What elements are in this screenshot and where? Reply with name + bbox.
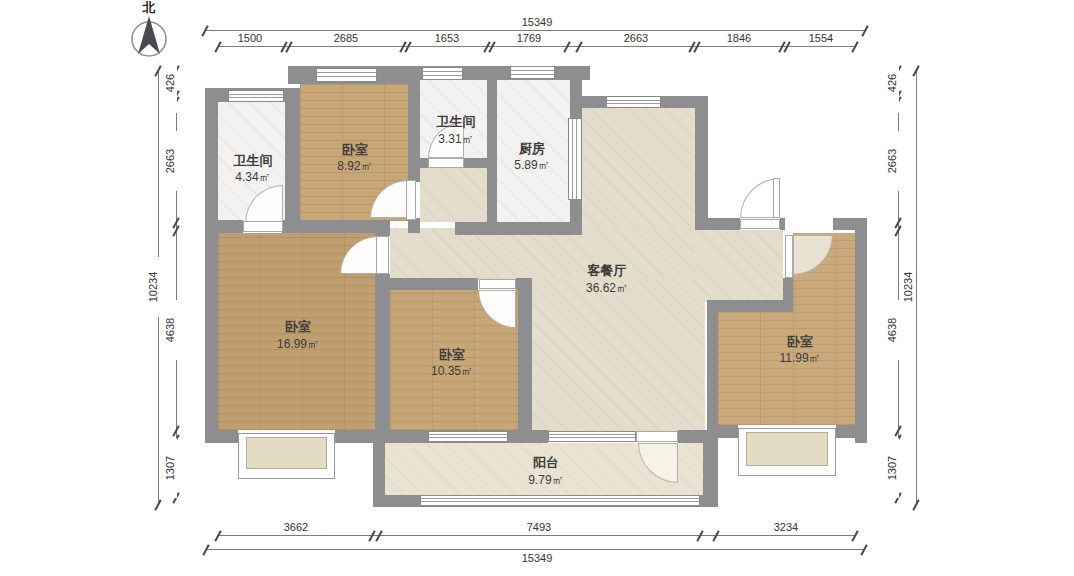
dim-top-7: 1554 <box>791 32 851 44</box>
bay-window-left-sill <box>246 437 327 469</box>
wall <box>532 430 548 443</box>
dim-left-1: 426 <box>163 53 177 113</box>
room-label-living: 客餐厅 <box>565 262 649 280</box>
dim-line-top-total <box>205 30 865 31</box>
wall <box>783 278 793 312</box>
wall <box>695 96 708 230</box>
door-leaf-bedroom-right <box>785 235 793 278</box>
door-threshold-entrance <box>740 219 780 229</box>
dim-bottom-1: 3662 <box>266 521 326 533</box>
dim-right-3: 4638 <box>885 300 899 360</box>
dim-left-4: 1307 <box>163 438 177 498</box>
wall <box>718 425 738 438</box>
dim-line-right-total <box>916 70 917 504</box>
door-leaf-bedroom-top <box>406 180 416 220</box>
window-bathroom-mid <box>422 67 463 80</box>
room-area-bedroom-right: 11.99㎡ <box>760 350 840 367</box>
dim-right-total: 10234 <box>901 257 915 317</box>
door-leaf-bedroom-left <box>376 236 389 274</box>
wall <box>455 222 582 235</box>
window-bedroom-mid <box>428 431 508 442</box>
room-label-bedroom-top: 卧室 <box>315 141 395 159</box>
dim-top-1: 1500 <box>220 32 280 44</box>
door-leaf-entrance <box>773 178 780 218</box>
wall <box>205 88 218 443</box>
room-label-bedroom-right: 卧室 <box>760 333 840 351</box>
dim-right-1: 426 <box>885 53 899 113</box>
room-label-bedroom-left: 卧室 <box>258 318 338 336</box>
door-threshold-balcony <box>636 431 678 442</box>
compass-north: 北 <box>118 2 180 60</box>
room-label-bathroom-mid: 卫生间 <box>416 113 496 131</box>
wall <box>375 278 478 290</box>
dim-left-total: 10234 <box>146 257 160 317</box>
window-living <box>606 96 661 108</box>
floor-living-band <box>390 228 705 280</box>
dim-right-4: 1307 <box>885 438 899 498</box>
window-living-balcony <box>548 431 636 442</box>
window-bathroom-left <box>228 90 284 102</box>
dim-top-6: 1846 <box>709 32 769 44</box>
door-threshold-bathroom-left <box>243 221 283 232</box>
room-area-kitchen: 5.89㎡ <box>492 157 572 174</box>
room-area-bedroom-mid: 10.35㎡ <box>412 363 492 380</box>
wall <box>282 220 390 233</box>
wall <box>375 274 390 443</box>
wall <box>707 300 718 443</box>
wall <box>707 300 793 312</box>
floor-entry-hall <box>695 230 783 302</box>
wall <box>695 218 740 230</box>
dim-bottom-total: 15349 <box>507 552 567 564</box>
floor-living-top <box>582 108 695 230</box>
wall <box>855 230 867 443</box>
room-label-kitchen: 厨房 <box>492 140 572 158</box>
dim-top-3: 1653 <box>417 32 477 44</box>
wall <box>780 218 785 230</box>
wall <box>375 220 390 236</box>
dim-top-total: 15349 <box>507 16 567 28</box>
dim-right-2: 2663 <box>885 131 899 191</box>
floor-hallway <box>420 168 488 222</box>
dim-line-top-segments <box>218 46 855 47</box>
wall <box>516 278 532 290</box>
wall <box>833 218 867 230</box>
dim-bottom-2: 7493 <box>509 521 569 533</box>
dim-bottom-3: 3234 <box>756 521 816 533</box>
window-bedroom-top <box>316 68 377 82</box>
wall <box>205 220 243 233</box>
room-area-bathroom-left: 4.34㎡ <box>213 169 293 186</box>
room-label-bedroom-mid: 卧室 <box>412 346 492 364</box>
door-threshold-bathroom-mid <box>428 158 464 168</box>
north-label: 北 <box>118 2 180 14</box>
room-area-bathroom-mid: 3.31㎡ <box>416 131 496 148</box>
door-leaf-bedroom-mid <box>479 279 516 289</box>
room-area-balcony: 9.79㎡ <box>506 472 586 489</box>
wall <box>678 430 703 443</box>
wall <box>408 158 428 168</box>
wall <box>836 425 867 438</box>
floorplan-canvas: 北 <box>0 0 1074 576</box>
wall <box>518 290 532 443</box>
floor-living-main <box>532 278 705 433</box>
room-label-bathroom-left: 卫生间 <box>213 152 293 170</box>
dim-top-2: 2685 <box>316 32 376 44</box>
dim-top-5: 2663 <box>606 32 666 44</box>
window-kitchen <box>510 66 555 79</box>
wall <box>205 430 238 443</box>
dim-left-2: 2663 <box>163 131 177 191</box>
room-area-bedroom-left: 16.99㎡ <box>258 336 338 353</box>
room-label-balcony: 阳台 <box>506 454 586 472</box>
dim-top-4: 1769 <box>499 32 559 44</box>
window-balcony-rail <box>420 495 700 506</box>
dim-line-bottom-segments <box>218 535 855 536</box>
bay-window-right-sill <box>746 432 828 466</box>
room-area-bedroom-top: 8.92㎡ <box>315 158 395 175</box>
room-area-living: 36.62㎡ <box>565 280 649 297</box>
floor-bedroom-right-lower <box>718 312 793 425</box>
wall <box>570 66 582 118</box>
wall <box>408 218 420 233</box>
dim-left-3: 4638 <box>163 300 177 360</box>
dim-line-bottom-total <box>206 549 864 550</box>
wall <box>464 158 488 168</box>
